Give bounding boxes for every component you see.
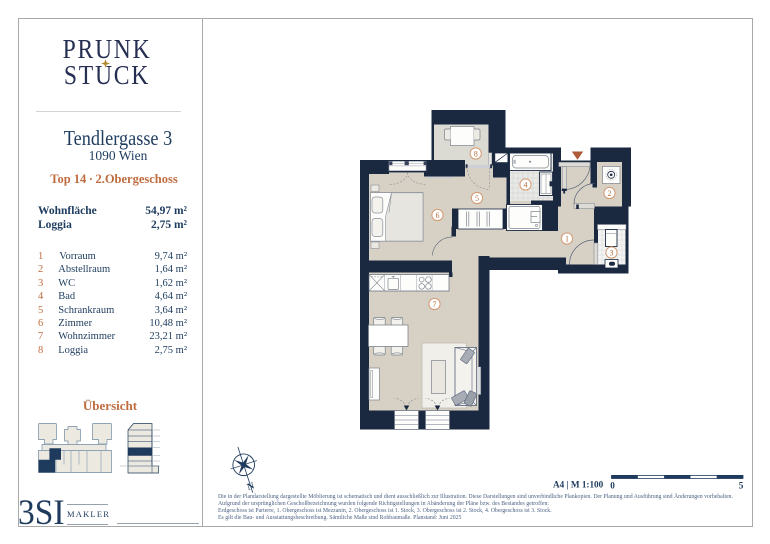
svg-text:A4 | M 1:100: A4 | M 1:100 bbox=[553, 480, 604, 490]
svg-text:2: 2 bbox=[608, 189, 612, 198]
svg-text:7: 7 bbox=[433, 300, 437, 309]
svg-text:4: 4 bbox=[524, 181, 528, 190]
svg-text:3: 3 bbox=[610, 249, 614, 258]
svg-text:0: 0 bbox=[610, 481, 615, 491]
svg-text:N: N bbox=[246, 481, 256, 493]
svg-text:6: 6 bbox=[436, 211, 440, 220]
svg-text:8: 8 bbox=[474, 150, 478, 159]
svg-text:5: 5 bbox=[739, 481, 744, 491]
svg-text:5: 5 bbox=[475, 194, 479, 203]
svg-text:1: 1 bbox=[565, 235, 569, 244]
